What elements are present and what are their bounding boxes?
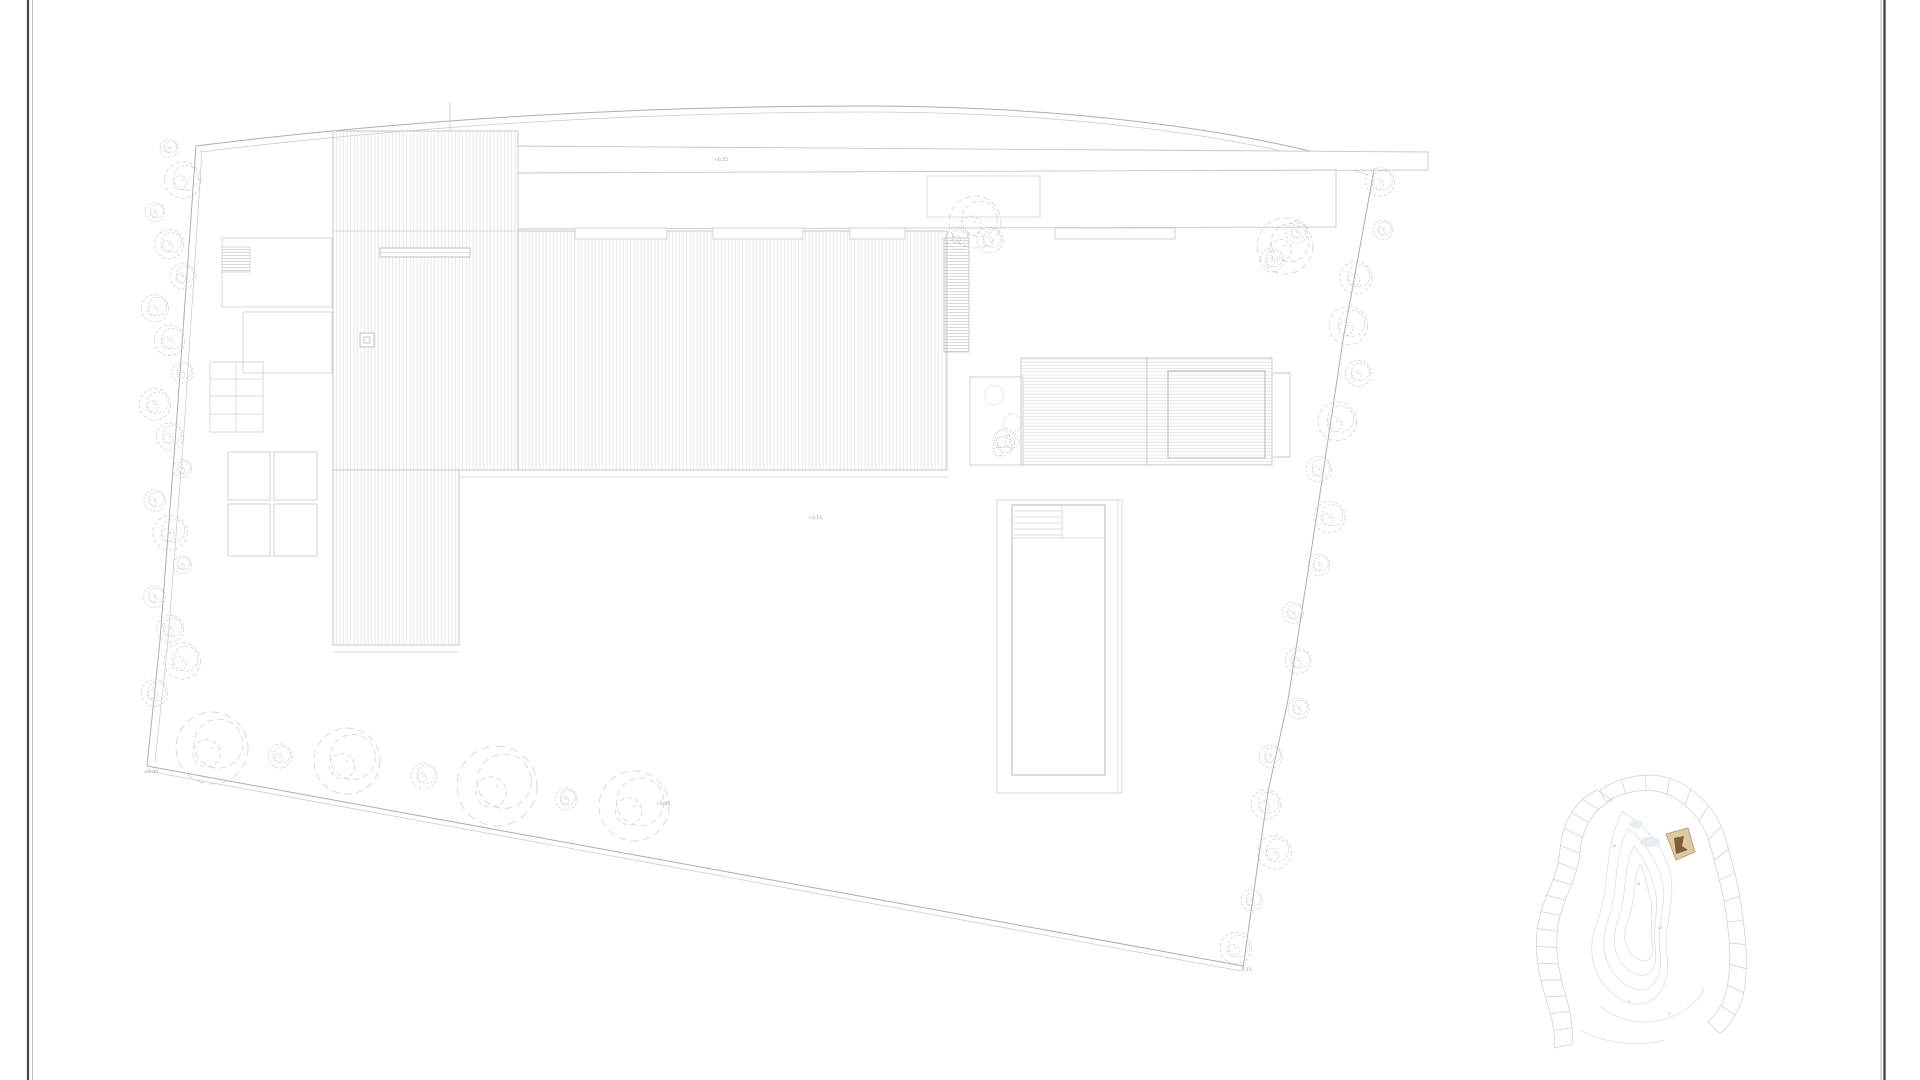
tree-trunk bbox=[565, 798, 567, 800]
tree-canopy bbox=[178, 558, 190, 570]
elevation-label: +0.15 bbox=[808, 515, 822, 521]
parcel-tick bbox=[1721, 1005, 1735, 1015]
tree-canopy bbox=[1271, 224, 1309, 262]
site-plan-drawing: +6.55 +0.15 ±0.00 +0.45 -0.15 bbox=[0, 0, 1920, 1080]
tree-canopy bbox=[173, 176, 187, 190]
location-inset-map: 24 18 11 7 3 bbox=[1536, 775, 1746, 1048]
tree-trunk bbox=[974, 221, 976, 223]
tree-canopy bbox=[194, 719, 243, 768]
tree-trunk bbox=[181, 564, 183, 566]
parcel-tick bbox=[1729, 943, 1745, 944]
roof-lintel bbox=[380, 248, 470, 257]
tree-canopy bbox=[1348, 265, 1370, 287]
parcel-tick bbox=[1553, 879, 1571, 885]
parcel-tick bbox=[1541, 912, 1560, 916]
tree-canopy bbox=[149, 588, 164, 603]
tree-trunk bbox=[154, 307, 156, 309]
tree-trunk bbox=[211, 747, 213, 749]
tree-canopy bbox=[162, 233, 182, 253]
tree-canopy bbox=[177, 364, 191, 378]
tree-canopy bbox=[1321, 514, 1333, 526]
parcel-tick bbox=[1727, 985, 1743, 993]
tree-canopy bbox=[1270, 240, 1291, 261]
tree-trunk bbox=[182, 372, 184, 374]
lot-label: 11 bbox=[1658, 926, 1662, 930]
tree-canopy bbox=[1265, 747, 1281, 763]
drawing-sheet: +6.55 +0.15 ±0.00 +0.45 -0.15 bbox=[0, 0, 1920, 1080]
tree-canopy bbox=[178, 461, 191, 474]
page-frame-right bbox=[1881, 0, 1885, 1080]
tree-trunk bbox=[1292, 612, 1294, 614]
parcel-tick bbox=[1571, 813, 1588, 822]
tree-trunk bbox=[1347, 325, 1349, 327]
tree-trunk bbox=[423, 775, 425, 777]
tree-trunk bbox=[1329, 516, 1331, 518]
tree-row-right bbox=[1220, 168, 1394, 964]
swimming-pool bbox=[1012, 505, 1105, 775]
tree-trunk bbox=[170, 628, 172, 630]
lot-label: 18 bbox=[1636, 882, 1640, 886]
tree-canopy bbox=[149, 492, 164, 507]
tree-trunk bbox=[1274, 851, 1276, 853]
tree-trunk bbox=[496, 785, 498, 787]
terrace-boxes bbox=[228, 452, 317, 556]
tree-trunk bbox=[989, 239, 991, 241]
parcel-tick bbox=[1538, 963, 1559, 964]
tree-trunk bbox=[957, 237, 959, 239]
tree-trunk bbox=[168, 147, 170, 149]
tree-canopy bbox=[1373, 171, 1392, 190]
tree-trunk bbox=[168, 243, 170, 245]
tree-canopy bbox=[176, 266, 193, 283]
parcel-tick bbox=[1536, 946, 1556, 948]
tree-canopy bbox=[1258, 801, 1269, 812]
tree-trunk bbox=[1298, 708, 1300, 710]
tree-canopy bbox=[561, 790, 576, 805]
timber-deck bbox=[1021, 358, 1290, 465]
tree-canopy bbox=[1352, 363, 1370, 381]
tree-trunk bbox=[154, 500, 156, 502]
parcel-tick bbox=[1554, 1044, 1572, 1048]
tree-canopy bbox=[1312, 459, 1329, 476]
tree-trunk bbox=[1355, 277, 1357, 279]
roof-skylight bbox=[360, 333, 374, 347]
elevation-label: ±0.00 bbox=[144, 769, 158, 775]
tree-trunk bbox=[1379, 181, 1381, 183]
tree-canopy bbox=[161, 519, 184, 542]
parcel-tick bbox=[1564, 829, 1582, 838]
tree-trunk bbox=[1235, 947, 1237, 949]
tree-trunk bbox=[1357, 373, 1359, 375]
parcel-tick bbox=[1727, 920, 1743, 922]
tree-canopy bbox=[193, 740, 220, 767]
tree-canopy bbox=[476, 777, 506, 807]
tree-canopy bbox=[1227, 944, 1239, 956]
tree-canopy bbox=[162, 241, 173, 252]
parcel-tick bbox=[1719, 873, 1734, 881]
tree-canopy bbox=[1378, 222, 1391, 235]
tree-canopy bbox=[1327, 417, 1342, 432]
tree-canopy bbox=[330, 753, 355, 778]
tree-trunk bbox=[1297, 660, 1299, 662]
tree-canopy bbox=[1339, 310, 1365, 336]
tree-trunk bbox=[1265, 804, 1267, 806]
tree-canopy bbox=[615, 798, 642, 825]
tree-canopy bbox=[1372, 179, 1383, 190]
elevation-label: -0.15 bbox=[1240, 967, 1252, 973]
parcel-tick bbox=[1708, 1022, 1720, 1034]
tree-canopy bbox=[1313, 556, 1328, 571]
tree-canopy bbox=[1288, 604, 1302, 618]
parcel-tick bbox=[1554, 1028, 1572, 1031]
parcel-tick bbox=[1730, 964, 1747, 968]
parcel-tick bbox=[1685, 789, 1691, 805]
tree-canopy bbox=[1322, 505, 1343, 526]
tree-canopy bbox=[1266, 848, 1279, 861]
parcel-tick bbox=[1709, 826, 1722, 839]
tree-canopy bbox=[165, 141, 177, 153]
tree-canopy bbox=[163, 426, 182, 445]
highlighted-lot bbox=[1666, 828, 1695, 860]
tree-canopy bbox=[331, 735, 376, 780]
tree-canopy bbox=[1266, 839, 1289, 862]
tree-canopy bbox=[1259, 793, 1279, 813]
elevation-label: +0.45 bbox=[656, 801, 670, 807]
parcel-tick bbox=[1646, 775, 1647, 790]
tree-trunk bbox=[1382, 229, 1384, 231]
tree-trunk bbox=[154, 404, 156, 406]
tree-canopy bbox=[161, 337, 173, 349]
tree-canopy bbox=[1293, 700, 1307, 714]
upper-canopy bbox=[518, 146, 1428, 173]
parcel-tick bbox=[1667, 778, 1670, 794]
parcel-tick bbox=[1560, 845, 1579, 853]
parcel-tick bbox=[1546, 996, 1566, 997]
tree-trunk bbox=[154, 596, 156, 598]
tree-canopy bbox=[146, 401, 158, 413]
parcel-tick bbox=[1622, 780, 1626, 794]
parcel-tick bbox=[1558, 863, 1577, 870]
roof-tabs bbox=[575, 228, 1175, 239]
tree-canopy bbox=[173, 646, 198, 671]
parcel-tick bbox=[1583, 800, 1599, 810]
tree-canopy bbox=[418, 766, 436, 784]
tree-trunk bbox=[181, 660, 183, 662]
tree-trunk bbox=[279, 755, 281, 757]
tree-trunk bbox=[169, 532, 171, 534]
tree-trunk bbox=[1336, 421, 1338, 423]
tree-canopy bbox=[274, 746, 290, 762]
parcel-tick bbox=[1724, 896, 1740, 901]
tree-canopy bbox=[477, 754, 531, 808]
tree-trunk bbox=[182, 275, 184, 277]
tree-trunk bbox=[154, 692, 156, 694]
parcel-tick bbox=[1714, 849, 1728, 860]
lot-label: 24 bbox=[1612, 844, 1616, 848]
nw-courtyard bbox=[210, 238, 332, 556]
tree-trunk bbox=[182, 179, 184, 181]
tree-trunk bbox=[1251, 899, 1253, 901]
tree-trunk bbox=[1318, 468, 1320, 470]
tree-trunk bbox=[169, 340, 171, 342]
tree-canopy bbox=[172, 657, 186, 671]
tree-trunk bbox=[633, 805, 635, 807]
tree-trunk bbox=[346, 760, 348, 762]
parcel-tick bbox=[1550, 1012, 1570, 1014]
tree-canopy bbox=[150, 204, 163, 217]
tree-trunk bbox=[169, 436, 171, 438]
nw-stairs bbox=[222, 247, 250, 272]
tree-trunk bbox=[154, 211, 156, 213]
tree-trunk bbox=[1318, 564, 1320, 566]
tree-row-left bbox=[139, 139, 201, 706]
parcel-tick bbox=[1600, 790, 1606, 802]
tree-trunk bbox=[182, 468, 184, 470]
tree-canopy bbox=[147, 392, 168, 413]
skylight-grid bbox=[210, 362, 263, 432]
page-frame-left bbox=[28, 0, 33, 1080]
upper-volume bbox=[518, 170, 1336, 229]
tree-canopy bbox=[162, 328, 183, 349]
parcel-tick bbox=[1537, 929, 1557, 932]
water-patch bbox=[1629, 820, 1660, 847]
pool-terrace bbox=[997, 500, 1122, 793]
tree-canopy bbox=[164, 618, 182, 636]
tree-trunk bbox=[1296, 231, 1298, 233]
tree-trunk bbox=[1284, 245, 1286, 247]
tree-canopy bbox=[148, 297, 166, 315]
planter-box bbox=[970, 377, 1023, 465]
parcel-tick bbox=[1547, 895, 1566, 900]
tree-trunk bbox=[1270, 756, 1272, 758]
parcel-tick bbox=[1699, 806, 1708, 821]
lot-label: 3 bbox=[1668, 1012, 1670, 1016]
east-stair bbox=[944, 231, 969, 470]
tree-trunk bbox=[1271, 259, 1273, 261]
parcel-band-west bbox=[1536, 790, 1612, 1048]
elevation-label: +6.55 bbox=[714, 157, 728, 163]
lot-label: 7 bbox=[1628, 1000, 1630, 1004]
